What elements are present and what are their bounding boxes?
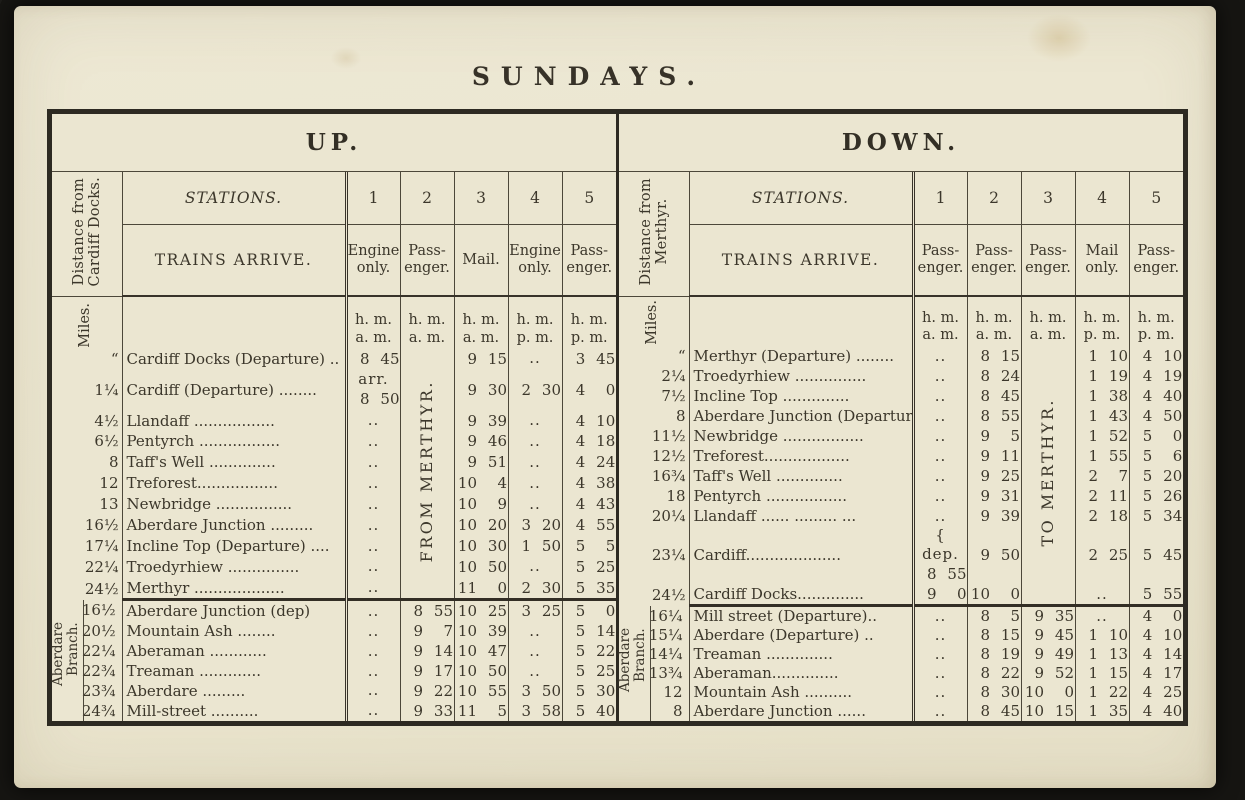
time-cell: 119 <box>1075 366 1129 386</box>
time-value: 1047 <box>455 642 508 661</box>
time-value: 951 <box>455 452 508 472</box>
no-stop-marker: .. <box>509 622 562 641</box>
no-stop-marker: .. <box>915 664 967 683</box>
time-cell: 155 <box>1075 446 1129 466</box>
down-table: DOWN. Distance from Merthyr. STATIONS. 1… <box>619 114 1183 721</box>
branch-row: 20½Mountain Ash ..........971039..514 <box>52 621 616 641</box>
miles-cell: 4½ <box>52 410 122 431</box>
time-value: 100 <box>968 584 1021 604</box>
station-row: 16½Aberdare Junction ...........10203204… <box>52 515 616 536</box>
miles-cell: 6½ <box>52 431 122 452</box>
station-cell: Pentyrch ................. <box>689 486 913 506</box>
miles-unit-cell: Miles. <box>619 296 689 346</box>
station-cell: Aberdare Junction ......... <box>122 515 346 536</box>
time-value: 830 <box>968 683 1021 702</box>
time-cell: .. <box>913 606 967 627</box>
no-stop-marker: .. <box>348 474 400 493</box>
time-cell: 100 <box>967 584 1021 606</box>
time-cell: .. <box>346 410 400 431</box>
time-cell: 1020 <box>454 515 508 536</box>
miles-cell: 23¾ <box>52 681 122 701</box>
miles-cell: 8 <box>619 406 689 426</box>
time-value: 915 <box>455 349 508 369</box>
no-stop-marker: .. <box>915 367 967 386</box>
miles-cell: 22¼ <box>52 641 122 661</box>
time-value: 520 <box>1130 466 1184 486</box>
time-value: 230 <box>509 380 562 400</box>
time-value: 525 <box>563 557 617 577</box>
station-cell: Cardiff Docks (Departure) .. <box>122 348 346 369</box>
miles-cell: 16¾ <box>619 466 689 486</box>
time-value: 917 <box>401 662 454 681</box>
time-cell: 50 <box>562 600 616 621</box>
time-cell: 526 <box>1129 486 1183 506</box>
time-value: 914 <box>401 642 454 661</box>
time-cell: 425 <box>1129 683 1183 702</box>
time-cell: 824 <box>967 366 1021 386</box>
time-value: 135 <box>1076 702 1129 721</box>
station-row: 7½Incline Top ................845138440 <box>619 386 1183 406</box>
time-value: 933 <box>401 702 454 721</box>
time-value: 417 <box>1130 664 1184 683</box>
time-value: 935 <box>1022 607 1075 626</box>
time-value: 218 <box>1076 506 1129 526</box>
miles-cell: Aberdare Branch.16½ <box>52 600 122 621</box>
time-cell: .. <box>1075 584 1129 606</box>
time-cell: .. <box>913 626 967 645</box>
station-cell: Treforest................. <box>122 473 346 494</box>
time-cell: .. <box>913 346 967 366</box>
time-cell: 815 <box>967 346 1021 366</box>
time-cell: 911 <box>967 446 1021 466</box>
time-value: 115 <box>1076 664 1129 683</box>
time-cell: .. <box>346 621 400 641</box>
station-row: 6½Pentyrch ...................946..418 <box>52 431 616 452</box>
time-value: 855 <box>401 602 454 621</box>
time-cell: 419 <box>1129 366 1183 386</box>
time-value: 952 <box>1022 664 1075 683</box>
time-cell: 414 <box>1129 645 1183 664</box>
time-cell: 100 <box>1021 683 1075 702</box>
no-stop-marker: .. <box>348 578 400 597</box>
time-value: 1055 <box>455 682 508 701</box>
time-value: 50 <box>563 602 617 621</box>
time-value: 85 <box>968 607 1021 626</box>
branch-row: 22¾Treaman ...............9171050..525 <box>52 661 616 681</box>
time-value: 119 <box>1076 366 1129 386</box>
time-value: 320 <box>509 515 562 535</box>
time-value: 845 <box>348 349 400 369</box>
down-col-type-4: Mail only. <box>1075 225 1129 297</box>
time-unit-header: h. m. p. m. <box>1129 296 1183 346</box>
no-stop-marker: .. <box>348 411 400 430</box>
time-value: 545 <box>1130 545 1184 565</box>
down-distance-label-cell: Distance from Merthyr. <box>619 172 689 296</box>
time-cell: 50 <box>1129 426 1183 446</box>
branch-row: 13¾Aberaman................822952115417 <box>619 664 1183 683</box>
station-cell: Aberdare Junction (Departure) <box>689 406 913 426</box>
time-value: 27 <box>1076 466 1129 486</box>
time-value: 414 <box>1130 645 1184 664</box>
miles-cell: 12 <box>619 683 689 702</box>
miles-unit-cell: Miles. <box>52 296 122 348</box>
time-cell: .. <box>346 661 400 681</box>
time-value: 55 <box>563 536 617 556</box>
time-cell: 1015 <box>1021 702 1075 721</box>
time-cell: 110 <box>1075 346 1129 366</box>
station-row: 17¼Incline Top (Departure) ......1030150… <box>52 536 616 557</box>
station-cell: Aberdare Junction (dep) <box>122 600 346 621</box>
time-value: 855 <box>915 564 967 584</box>
up-distance-label: Distance from Cardiff Docks. <box>71 177 103 286</box>
miles-cell: “ <box>52 348 122 369</box>
time-cell: 440 <box>1129 702 1183 721</box>
time-cell: 914 <box>400 641 454 661</box>
time-value: 855 <box>968 406 1021 426</box>
time-value: 1039 <box>455 622 508 641</box>
time-value: 931 <box>968 486 1021 506</box>
time-cell: 325 <box>508 600 562 621</box>
time-cell: 115 <box>454 701 508 721</box>
time-cell: .. <box>508 641 562 661</box>
no-stop-marker: .. <box>348 642 400 661</box>
time-value: 122 <box>1076 683 1129 702</box>
direction-note: FROM MERTHYR. <box>418 380 436 562</box>
no-stop-marker: .. <box>348 557 400 576</box>
time-value: 90 <box>915 584 967 604</box>
time-value: 150 <box>509 536 562 556</box>
time-cell: .. <box>346 701 400 721</box>
time-cell: .. <box>508 410 562 431</box>
time-cell: 110 <box>454 577 508 600</box>
branch-row: 23¾Aberdare ...........9221055350530 <box>52 681 616 701</box>
miles-cell: 24½ <box>52 577 122 600</box>
no-stop-marker: .. <box>915 626 967 645</box>
time-cell: .. <box>346 431 400 452</box>
time-value: 450 <box>1130 406 1184 426</box>
time-value: 440 <box>1130 386 1184 406</box>
time-value: 922 <box>401 682 454 701</box>
station-cell: Mill street (Departure).. <box>689 606 913 627</box>
time-value: 939 <box>968 506 1021 526</box>
time-value: 1050 <box>455 662 508 681</box>
time-cell: .. <box>346 536 400 557</box>
station-cell: Aberaman ............ <box>122 641 346 661</box>
time-cell: .. <box>346 641 400 661</box>
miles-cell: 11½ <box>619 426 689 446</box>
time-value: 424 <box>563 452 617 472</box>
station-cell: Aberaman.............. <box>689 664 913 683</box>
station-row: 24½Merthyr .....................11023053… <box>52 577 616 600</box>
time-cell: 830 <box>967 683 1021 702</box>
time-cell: 951 <box>454 452 508 473</box>
time-cell: 555 <box>1129 584 1183 606</box>
time-cell: .. <box>346 494 400 515</box>
time-unit-header: h. m. a. m. <box>913 296 967 346</box>
time-cell: .. <box>346 515 400 536</box>
time-value: 225 <box>1076 545 1129 565</box>
time-cell: 109 <box>454 494 508 515</box>
time-value: 95 <box>968 426 1021 446</box>
miles-cell: 20½ <box>52 621 122 641</box>
branch-row: 15¼Aberdare (Departure) ....815945110410 <box>619 626 1183 645</box>
time-cell: 110 <box>1075 626 1129 645</box>
time-cell: .. <box>508 431 562 452</box>
no-stop-marker: .. <box>348 516 400 535</box>
time-cell: 535 <box>562 577 616 600</box>
time-value: 325 <box>509 602 562 621</box>
time-value: 534 <box>1130 506 1184 526</box>
time-value: 945 <box>1022 626 1075 645</box>
no-stop-marker: .. <box>509 557 562 576</box>
station-row: 16¾Taff's Well ................92527520 <box>619 466 1183 486</box>
time-cell: 946 <box>454 431 508 452</box>
no-stop-marker: .. <box>915 507 967 526</box>
time-value: 540 <box>563 702 617 721</box>
time-unit-header: h. m. p. m. <box>562 296 616 348</box>
up-col-number-5: 5 <box>562 172 616 225</box>
time-value: 911 <box>968 446 1021 466</box>
miles-cell: 1¼ <box>52 369 122 410</box>
miles-cell: 13 <box>52 494 122 515</box>
time-cell: .. <box>913 702 967 721</box>
miles-cell: 13¾ <box>619 664 689 683</box>
station-cell: Cardiff (Departure) ........ <box>122 369 346 410</box>
no-stop-marker: .. <box>915 347 967 366</box>
time-cell: 855 <box>400 600 454 621</box>
station-row: 12½Treforest....................91115556 <box>619 446 1183 466</box>
miles-cell: “ <box>619 346 689 366</box>
time-cell: 952 <box>1021 664 1075 683</box>
time-cell: 949 <box>1021 645 1075 664</box>
time-cell: 90 <box>913 584 967 606</box>
up-table: UP. Distance from Cardiff Docks. STATION… <box>52 114 619 721</box>
time-value: 110 <box>1076 626 1129 645</box>
time-cell: 933 <box>400 701 454 721</box>
time-cell: 410 <box>1129 346 1183 366</box>
station-cell: Aberdare ......... <box>122 681 346 701</box>
time-cell: .. <box>913 386 967 406</box>
time-cell: 417 <box>1129 664 1183 683</box>
time-value: 946 <box>455 431 508 451</box>
time-cell: 95 <box>967 426 1021 446</box>
time-cell: 819 <box>967 645 1021 664</box>
time-cell: 455 <box>562 515 616 536</box>
time-cell: 115 <box>1075 664 1129 683</box>
time-cell: .. <box>913 683 967 702</box>
time-value: 455 <box>563 515 617 535</box>
time-value: 211 <box>1076 486 1129 506</box>
time-unit-header: h. m. p. m. <box>1075 296 1129 346</box>
miles-cell: Aberdare Branch.16¼ <box>619 606 689 627</box>
no-stop-marker: .. <box>509 432 562 451</box>
down-grid: Distance from Merthyr. STATIONS. 1 2 3 4… <box>619 172 1183 721</box>
down-col-number-5: 5 <box>1129 172 1183 225</box>
no-stop-marker: .. <box>348 701 400 720</box>
time-cell: 945 <box>1021 626 1075 645</box>
time-cell: 1039 <box>454 621 508 641</box>
time-cell: 845 <box>346 348 400 369</box>
time-cell: 104 <box>454 473 508 494</box>
miles-cell: 16½ <box>52 515 122 536</box>
time-cell: 1055 <box>454 681 508 701</box>
station-cell: Treaman .............. <box>689 645 913 664</box>
up-col-number-3: 3 <box>454 172 508 225</box>
time-value: 104 <box>455 473 508 493</box>
time-cell: .. <box>346 681 400 701</box>
time-cell: 522 <box>562 641 616 661</box>
time-cell: .. <box>508 473 562 494</box>
station-cell: Treaman ............. <box>122 661 346 681</box>
time-cell: 225 <box>1075 526 1129 584</box>
miles-label: Miles. <box>77 303 93 348</box>
time-value: 113 <box>1076 645 1129 664</box>
time-cell: 514 <box>562 621 616 641</box>
time-note: { dep. <box>915 526 967 564</box>
time-cell: .. <box>508 661 562 681</box>
up-grid: Distance from Cardiff Docks. STATIONS. 1… <box>52 172 616 721</box>
up-distance-label-cell: Distance from Cardiff Docks. <box>52 172 122 296</box>
no-stop-marker: .. <box>1076 607 1129 626</box>
time-cell: 915 <box>454 348 508 369</box>
time-value: 949 <box>1022 645 1075 664</box>
time-value: 438 <box>563 473 617 493</box>
time-unit-header: h. m. a. m. <box>454 296 508 348</box>
units-row: Miles.h. m. a. m.h. m. a. m.h. m. a. m.h… <box>619 296 1183 346</box>
up-col-number-1: 1 <box>346 172 400 225</box>
no-stop-marker: .. <box>915 702 967 721</box>
up-col-type-5: Pass- enger. <box>562 225 616 297</box>
time-cell: .. <box>1075 606 1129 627</box>
time-cell: 56 <box>1129 446 1183 466</box>
time-value: 109 <box>455 494 508 514</box>
timetable-frame: UP. Distance from Cardiff Docks. STATION… <box>47 109 1188 726</box>
time-cell: 350 <box>508 681 562 701</box>
time-value: 525 <box>563 662 617 681</box>
miles-cell: 17¼ <box>52 536 122 557</box>
up-col-type-3: Mail. <box>454 225 508 297</box>
time-value: 555 <box>1130 584 1184 604</box>
time-cell: 815 <box>967 626 1021 645</box>
time-value: 819 <box>968 645 1021 664</box>
time-cell: 55 <box>562 536 616 557</box>
no-stop-marker: .. <box>1076 585 1129 604</box>
time-cell: .. <box>913 406 967 426</box>
branch-row: 12Mountain Ash ............830100122425 <box>619 683 1183 702</box>
time-value: 535 <box>563 578 617 598</box>
direction-note-cell: TO MERTHYR. <box>1021 346 1075 606</box>
time-unit-header: h. m. p. m. <box>508 296 562 348</box>
no-stop-marker: .. <box>348 453 400 472</box>
time-cell: 320 <box>508 515 562 536</box>
time-cell: .. <box>508 557 562 578</box>
time-value: 138 <box>1076 386 1129 406</box>
station-row: 12Treforest...................104..438 <box>52 473 616 494</box>
time-value: 345 <box>563 349 617 369</box>
station-cell: Newbridge ................ <box>122 494 346 515</box>
time-cell: 925 <box>967 466 1021 486</box>
no-stop-marker: .. <box>915 683 967 702</box>
no-stop-marker: .. <box>915 407 967 426</box>
station-cell: Newbridge ................. <box>689 426 913 446</box>
no-stop-marker: .. <box>915 607 967 626</box>
time-cell: 917 <box>400 661 454 681</box>
station-row: 24½Cardiff Docks..............90100..555 <box>619 584 1183 606</box>
direction-note-cell: FROM MERTHYR. <box>400 348 454 600</box>
time-cell: arr.850 <box>346 369 400 410</box>
no-stop-marker: .. <box>915 447 967 466</box>
station-row: 20¼Llandaff ...... ......... .....939218… <box>619 506 1183 526</box>
time-value: 815 <box>968 626 1021 645</box>
station-row: “Cardiff Docks (Departure) ..845FROM MER… <box>52 348 616 369</box>
units-row: Miles.h. m. a. m.h. m. a. m.h. m. a. m.h… <box>52 296 616 348</box>
miles-cell: 18 <box>619 486 689 506</box>
time-cell: 122 <box>1075 683 1129 702</box>
time-value: 939 <box>455 411 508 431</box>
time-cell: 345 <box>562 348 616 369</box>
time-value: 815 <box>968 346 1021 366</box>
time-value: 822 <box>968 664 1021 683</box>
time-cell: 1050 <box>454 557 508 578</box>
time-cell: 1030 <box>454 536 508 557</box>
time-cell: 424 <box>562 452 616 473</box>
down-col-type-3: Pass- enger. <box>1021 225 1075 297</box>
time-cell: 525 <box>562 557 616 578</box>
station-cell: Llandaff ...... ......... ... <box>689 506 913 526</box>
station-cell: Merthyr (Departure) ........ <box>689 346 913 366</box>
station-cell: Cardiff.................... <box>689 526 913 584</box>
time-cell: 935 <box>1021 606 1075 627</box>
up-col-number-4: 4 <box>508 172 562 225</box>
no-stop-marker: .. <box>348 602 400 621</box>
time-cell: .. <box>508 621 562 641</box>
station-row: 8Aberdare Junction (Departure)..85514345… <box>619 406 1183 426</box>
time-value: 110 <box>455 578 508 598</box>
miles-cell: 14¼ <box>619 645 689 664</box>
time-cell: 939 <box>454 410 508 431</box>
time-cell: 135 <box>1075 702 1129 721</box>
up-title: UP. <box>52 114 616 172</box>
time-unit-header: h. m. a. m. <box>346 296 400 348</box>
down-col-number-3: 3 <box>1021 172 1075 225</box>
time-value: 950 <box>968 545 1021 565</box>
time-value: 845 <box>968 702 1021 721</box>
station-cell: Incline Top .............. <box>689 386 913 406</box>
time-cell: 410 <box>562 410 616 431</box>
time-cell: { dep.855 <box>913 526 967 584</box>
no-stop-marker: .. <box>509 411 562 430</box>
time-cell: 450 <box>1129 406 1183 426</box>
down-arrive-header: TRAINS ARRIVE. <box>689 225 913 297</box>
time-value: 530 <box>563 682 617 701</box>
time-cell: .. <box>346 452 400 473</box>
station-row: 1¼Cardiff (Departure) ........arr.850930… <box>52 369 616 410</box>
time-cell: 525 <box>562 661 616 681</box>
down-distance-label: Distance from Merthyr. <box>638 178 670 286</box>
time-cell: 545 <box>1129 526 1183 584</box>
time-value: 40 <box>563 380 617 400</box>
down-title: DOWN. <box>619 114 1183 172</box>
up-stations-header: STATIONS. <box>122 172 346 225</box>
time-value: 50 <box>1130 426 1184 446</box>
time-cell: 534 <box>1129 506 1183 526</box>
down-col-number-1: 1 <box>913 172 967 225</box>
miles-cell: 8 <box>52 452 122 473</box>
time-cell: 950 <box>967 526 1021 584</box>
miles-cell: 12 <box>52 473 122 494</box>
miles-cell: 12½ <box>619 446 689 466</box>
time-cell: 113 <box>1075 645 1129 664</box>
